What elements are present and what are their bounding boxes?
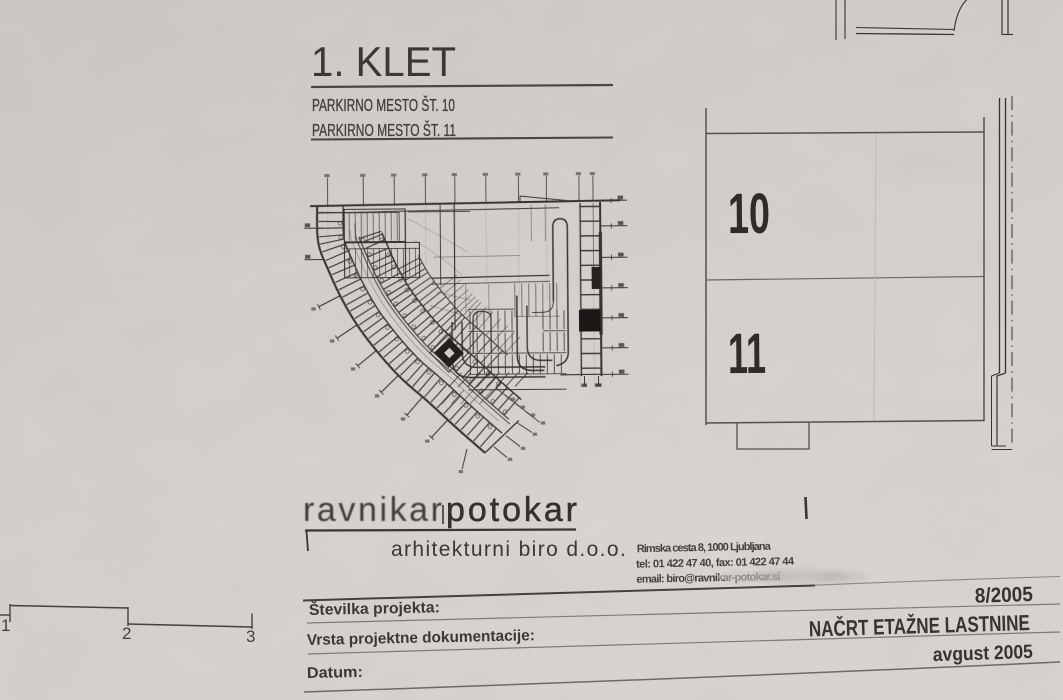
svg-text:avgust 2005: avgust 2005 (933, 641, 1034, 666)
svg-text:ravnikar: ravnikar (303, 491, 442, 529)
svg-text:NAČRT ETAŽNE LASTNINE: NAČRT ETAŽNE LASTNINE (809, 610, 1031, 642)
svg-text:1: 1 (1, 616, 10, 635)
svg-text:Rimska cesta 8, 1000 Ljubljana: Rimska cesta 8, 1000 Ljubljana (637, 541, 772, 556)
svg-text:Vrsta projektne dokumentacije:: Vrsta projektne dokumentacije: (307, 627, 535, 649)
svg-text:arhitekturni biro d.o.o.: arhitekturni biro d.o.o. (391, 538, 627, 561)
svg-text:Datum:: Datum: (307, 664, 363, 682)
svg-text:10: 10 (728, 182, 771, 246)
svg-text:1. KLET: 1. KLET (311, 38, 456, 85)
svg-text:8/2005: 8/2005 (974, 583, 1033, 608)
svg-text:tel: 01 422 47 40, fax: 01 422: tel: 01 422 47 40, fax: 01 422 47 44 (636, 556, 795, 571)
svg-text:PARKIRNO MESTO ŠT. 10: PARKIRNO MESTO ŠT. 10 (312, 94, 455, 115)
svg-text:PARKIRNO MESTO ŠT. 11: PARKIRNO MESTO ŠT. 11 (312, 119, 456, 140)
svg-text:11: 11 (728, 322, 767, 386)
svg-text:2: 2 (122, 624, 131, 643)
svg-text:potokar: potokar (446, 491, 577, 529)
svg-text:Številka projekta:: Številka projekta: (309, 598, 440, 619)
svg-text:3: 3 (246, 627, 255, 646)
